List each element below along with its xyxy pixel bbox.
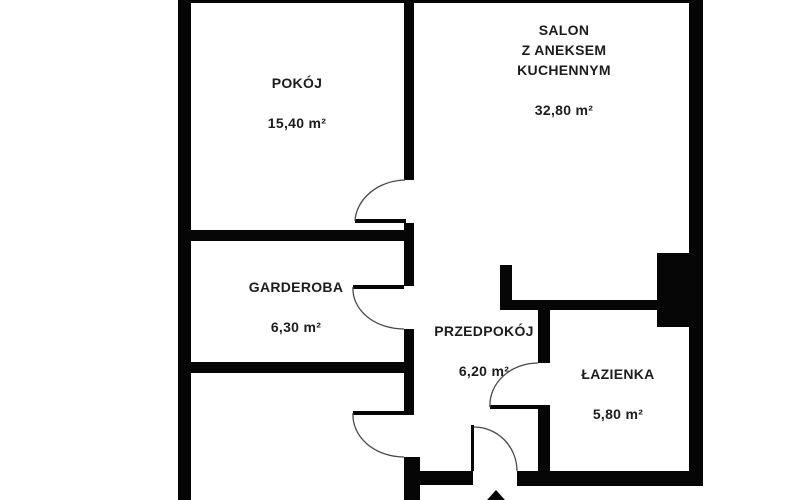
walls-group	[178, 0, 703, 500]
wall-salon-south	[500, 300, 658, 310]
door-lazienka-leaf	[490, 405, 540, 409]
door-garderoba-arc	[353, 287, 404, 329]
shaft-block	[657, 253, 689, 327]
outer-wall-top	[178, 0, 703, 3]
divider-wall-segment-a	[404, 0, 414, 180]
doors-group	[353, 180, 540, 471]
wall-lazienka-west-upper	[538, 303, 550, 363]
door-entrance-leaf	[471, 425, 474, 471]
door-south-room-arc	[353, 413, 404, 457]
floorplan-svg	[0, 0, 790, 500]
wall-lazienka-west-lower	[538, 405, 550, 471]
wall-garderoba-south	[191, 362, 404, 373]
door-south-room-leaf	[353, 411, 404, 415]
floorplan-canvas: POKÓJ 15,40 m² SALON Z ANEKSEM KUCHENNYM…	[0, 0, 790, 500]
wall-south-east-segment	[517, 471, 703, 486]
door-lazienka-arc	[490, 363, 538, 407]
wall-salon-stub	[500, 265, 512, 305]
entrance-arrow-group	[487, 490, 505, 500]
door-garderoba-leaf	[353, 285, 404, 289]
divider-wall-segment-c	[404, 329, 414, 415]
wall-pokoj-south	[191, 230, 414, 241]
wall-south-west-segment	[404, 471, 473, 485]
entrance-arrow-icon	[487, 490, 505, 500]
door-entrance-arc	[474, 427, 517, 471]
door-pokoj-arc	[355, 180, 405, 221]
outer-wall-right	[689, 0, 703, 486]
door-pokoj-leaf	[355, 219, 406, 223]
outer-wall-left	[178, 0, 191, 500]
